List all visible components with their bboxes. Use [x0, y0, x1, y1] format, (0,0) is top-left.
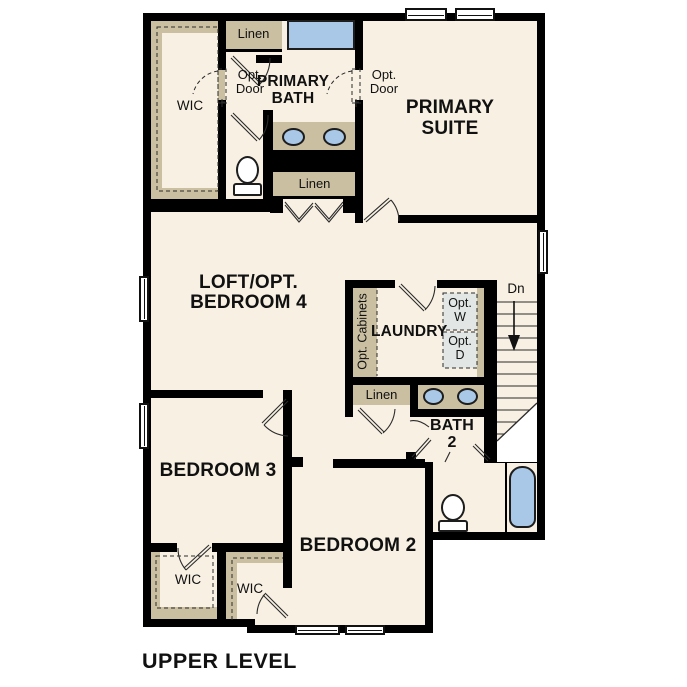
annotation-stairs-down: Dn: [502, 282, 530, 297]
wall: [273, 150, 356, 172]
closet-label-linen-hall: Linen: [353, 388, 410, 402]
wall: [283, 552, 292, 588]
wall: [247, 625, 433, 633]
room-label-primary-bath: PRIMARY BATH: [253, 74, 333, 107]
annotation-opt-cabinets: Opt. Cabinets: [357, 288, 372, 376]
room-label-bedroom3: BEDROOM 3: [156, 461, 280, 481]
wall: [406, 452, 416, 462]
wall: [218, 100, 226, 199]
wall: [143, 390, 263, 398]
wall: [283, 390, 292, 552]
toilet-icon: [438, 520, 468, 532]
window: [295, 625, 340, 635]
wall: [143, 199, 282, 212]
room-label-wic-bedroom3: WIC: [164, 573, 212, 588]
room-label-bedroom2: BEDROOM 2: [293, 536, 423, 556]
window: [139, 403, 149, 449]
window: [139, 276, 149, 322]
sink-icon: [282, 128, 305, 146]
wall: [355, 21, 363, 70]
wall: [425, 532, 545, 540]
wall: [437, 280, 484, 288]
annotation-opt-washer: Opt. W: [443, 297, 477, 324]
wall: [263, 110, 273, 199]
wall: [143, 619, 255, 627]
toilet-icon: [236, 156, 259, 184]
window: [538, 230, 548, 274]
wall: [398, 215, 537, 223]
wall: [345, 377, 484, 385]
closet-label-linen-bath: Linen: [273, 177, 356, 191]
wall: [343, 199, 363, 213]
page-title: UPPER LEVEL: [142, 650, 362, 673]
toilet-icon: [441, 494, 465, 521]
room-label-bath2: BATH 2: [426, 417, 478, 451]
sink-icon: [457, 388, 478, 405]
room-label-laundry: LAUNDRY: [371, 324, 441, 341]
window: [455, 8, 495, 21]
wall: [143, 543, 177, 552]
shower-icon: [287, 20, 355, 50]
wall: [292, 457, 303, 467]
bathtub-icon: [509, 466, 536, 528]
closet-label-linen-top: Linen: [225, 27, 282, 41]
room-label-primary-suite: PRIMARY SUITE: [390, 97, 510, 139]
room-label-wic-bedroom2: WIC: [227, 582, 273, 597]
wall: [410, 409, 484, 417]
wall: [505, 462, 507, 532]
wall: [484, 455, 545, 463]
wall: [345, 280, 353, 417]
wall: [225, 49, 282, 52]
room-label-loft: LOFT/OPT. BEDROOM 4: [176, 273, 321, 313]
wall: [217, 543, 226, 619]
floor-plan: WIC Linen Opt. Door PRIMARY BATH Opt. Do…: [0, 0, 687, 687]
sink-icon: [423, 388, 444, 405]
sink-icon: [323, 128, 346, 146]
annotation-opt-door-right: Opt. Door: [362, 68, 406, 96]
wall: [270, 199, 283, 213]
annotation-opt-dryer: Opt. D: [443, 335, 477, 362]
toilet-icon: [233, 183, 262, 196]
window: [345, 625, 385, 635]
room-label-wic-primary: WIC: [166, 99, 214, 114]
wall: [425, 462, 433, 633]
wall: [484, 280, 497, 462]
window: [405, 8, 447, 21]
wall: [256, 55, 282, 63]
